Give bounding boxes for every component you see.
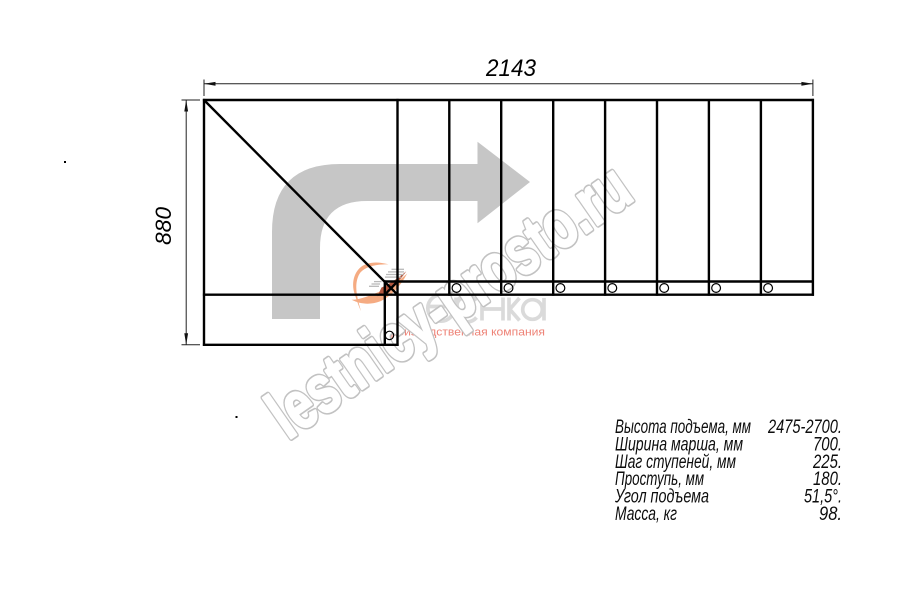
svg-text:98.: 98. — [819, 503, 842, 525]
svg-text:Масса, кг: Масса, кг — [615, 503, 677, 525]
svg-text:880: 880 — [151, 206, 176, 245]
svg-text:2143: 2143 — [485, 55, 537, 82]
